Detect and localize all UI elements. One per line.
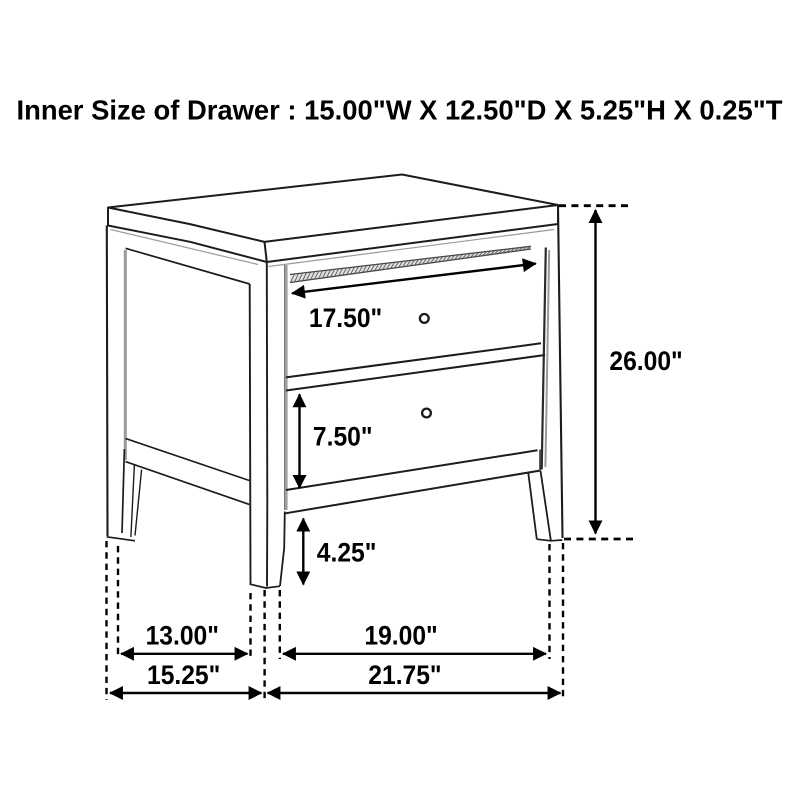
svg-text:15.25": 15.25"	[147, 661, 220, 690]
svg-text:4.25": 4.25"	[317, 539, 377, 568]
svg-text:21.75": 21.75"	[368, 661, 441, 690]
svg-text:26.00": 26.00"	[609, 347, 682, 376]
svg-text:13.00": 13.00"	[146, 621, 219, 650]
svg-text:17.50": 17.50"	[309, 304, 382, 333]
svg-text:7.50": 7.50"	[313, 422, 373, 451]
svg-text:Inner Size of Drawer : 15.00"W: Inner Size of Drawer : 15.00"W X 12.50"D…	[17, 95, 783, 126]
svg-text:19.00": 19.00"	[364, 621, 437, 650]
